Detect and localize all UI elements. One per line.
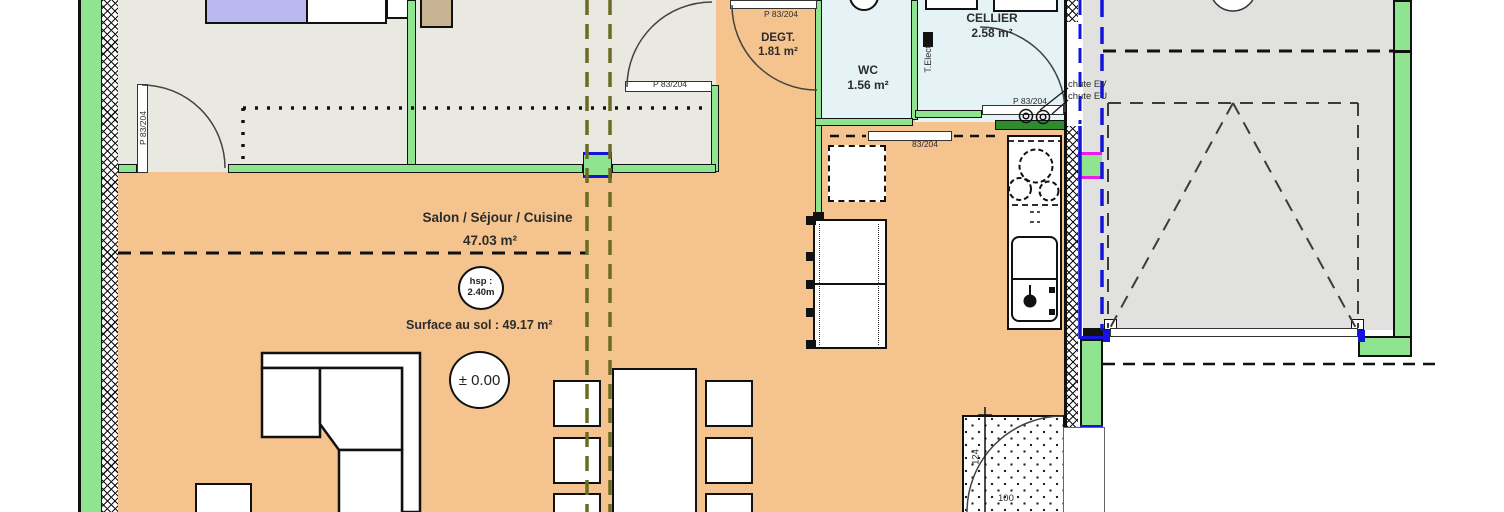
salon-area-label: 47.03 m² — [400, 233, 580, 248]
bedroom-divider-wall — [407, 0, 416, 172]
bedroom2-right-wall — [711, 85, 719, 172]
chute-ev-label: chute EV — [1068, 79, 1107, 90]
door-size-label: P 83/204 — [745, 9, 817, 19]
kitchen-island — [813, 219, 887, 349]
wc-area-label: 1.56 m² — [835, 78, 901, 92]
island-handle — [806, 280, 814, 289]
door-size-label: P 83/204 — [630, 79, 710, 89]
island-handle — [806, 308, 814, 317]
hsp-value: 2.40m — [468, 288, 495, 299]
insulation-right — [1067, 126, 1078, 427]
wall-joint-line — [1393, 50, 1412, 53]
coffee-table — [195, 483, 252, 512]
window-sill-blue — [1080, 336, 1103, 339]
kitchen-top-wall — [995, 120, 1065, 130]
exterior-wall-right — [1393, 0, 1412, 357]
bedroom1-floor — [118, 0, 412, 172]
wc-left-wall — [815, 0, 822, 213]
door-size-label: P 83/204 — [998, 96, 1062, 106]
wall-cap — [813, 212, 824, 219]
exterior-wall-left — [81, 0, 102, 512]
telect-label: T.Elect. — [923, 43, 933, 73]
porch-outside — [1063, 427, 1105, 512]
bedrooms-bottom-wall — [118, 164, 137, 173]
level-value: ± 0.00 — [459, 372, 501, 389]
wc-room-label: WC — [835, 63, 901, 77]
wc-cellier-divider — [911, 0, 918, 120]
wc-floor — [820, 0, 913, 122]
cellier-bottom-wall — [915, 110, 982, 118]
insulation-right-top — [1067, 0, 1078, 22]
bed-duvet — [205, 0, 308, 24]
garage-door-panel — [1110, 328, 1358, 337]
chair — [553, 493, 601, 512]
dining-table — [612, 368, 697, 512]
garage-door-post — [1103, 330, 1110, 342]
chair — [553, 437, 601, 484]
entry-dim-height: 124 — [971, 449, 982, 465]
chair — [553, 380, 601, 427]
garage-corner-wall — [1358, 336, 1412, 357]
kitchen-counter — [1007, 135, 1062, 330]
cellier-area-label: 2.58 m² — [953, 26, 1031, 40]
chair — [705, 493, 753, 512]
floor-plan: Salon / Séjour / Cuisine 47.03 m² Surfac… — [0, 0, 1504, 512]
interior-window — [583, 152, 612, 178]
bedrooms-bottom-wall — [612, 164, 716, 173]
door-size-label: 83/204 — [898, 139, 952, 149]
level-badge: ± 0.00 — [449, 351, 510, 409]
island-handle — [806, 340, 816, 349]
garage-window — [1078, 152, 1102, 179]
garage-left-wall-block — [1080, 339, 1103, 427]
degagement-room-label: DEGT. — [740, 32, 816, 44]
garage-floor — [1083, 0, 1395, 330]
salon-room-label: Salon / Séjour / Cuisine — [400, 210, 595, 225]
reserved-space-dashed — [828, 145, 886, 202]
insulation-left — [102, 0, 118, 512]
chair — [705, 380, 753, 427]
bedrooms-bottom-wall — [228, 164, 583, 173]
door-leaf-cellier — [982, 105, 1064, 115]
chair — [705, 437, 753, 484]
cellier-room-label: CELLIER — [953, 11, 1031, 25]
surface-sol-label: Surface au sol : 49.17 m² — [406, 318, 553, 332]
chute-eu-label: chute EU — [1068, 91, 1107, 102]
cellier-appliance — [925, 0, 978, 10]
door-size-label: P 83/204 — [138, 111, 148, 145]
nightstand — [420, 0, 453, 28]
degagement-area-label: 1.81 m² — [740, 46, 816, 58]
bed-sheet — [306, 0, 387, 24]
door-leaf-degagement — [730, 0, 817, 9]
wc-bottom-wall — [815, 118, 913, 126]
island-handle — [806, 252, 814, 261]
hsp-badge: hsp : 2.40m — [458, 266, 504, 310]
garage-door-post — [1358, 330, 1365, 342]
entry-dim-width: 100 — [998, 493, 1014, 504]
